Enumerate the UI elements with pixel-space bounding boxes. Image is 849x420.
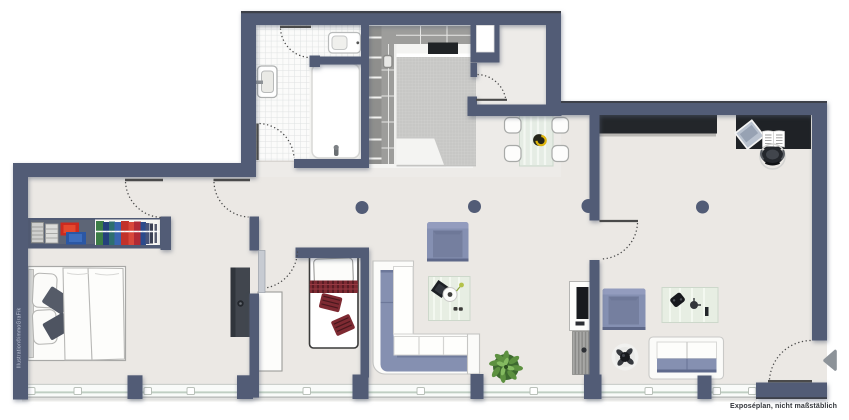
- svg-text:Illustration©immoGraFik: Illustration©immoGraFik: [16, 308, 23, 369]
- svg-text:Exposéplan, nicht maßstäblich: Exposéplan, nicht maßstäblich: [730, 402, 837, 410]
